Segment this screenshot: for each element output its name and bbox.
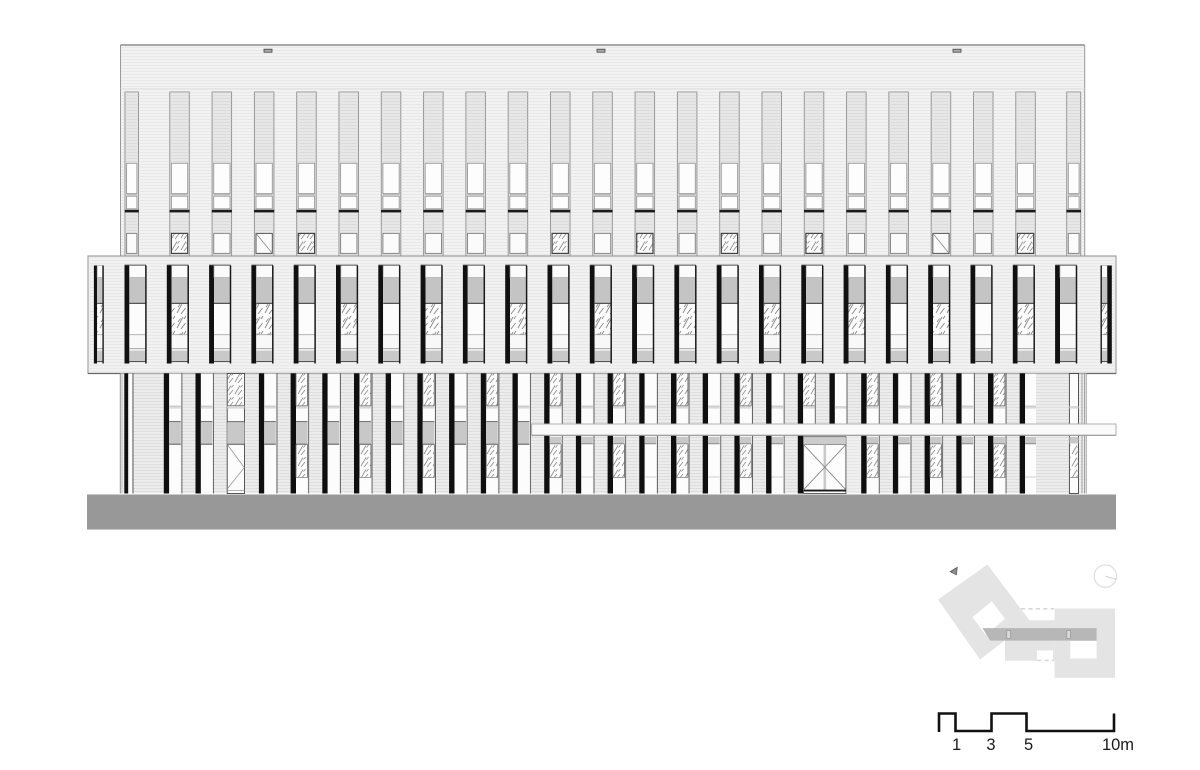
svg-text:10m: 10m [1102,736,1134,754]
svg-text:5: 5 [1024,736,1033,754]
svg-text:1: 1 [952,736,961,754]
svg-text:3: 3 [986,736,995,754]
